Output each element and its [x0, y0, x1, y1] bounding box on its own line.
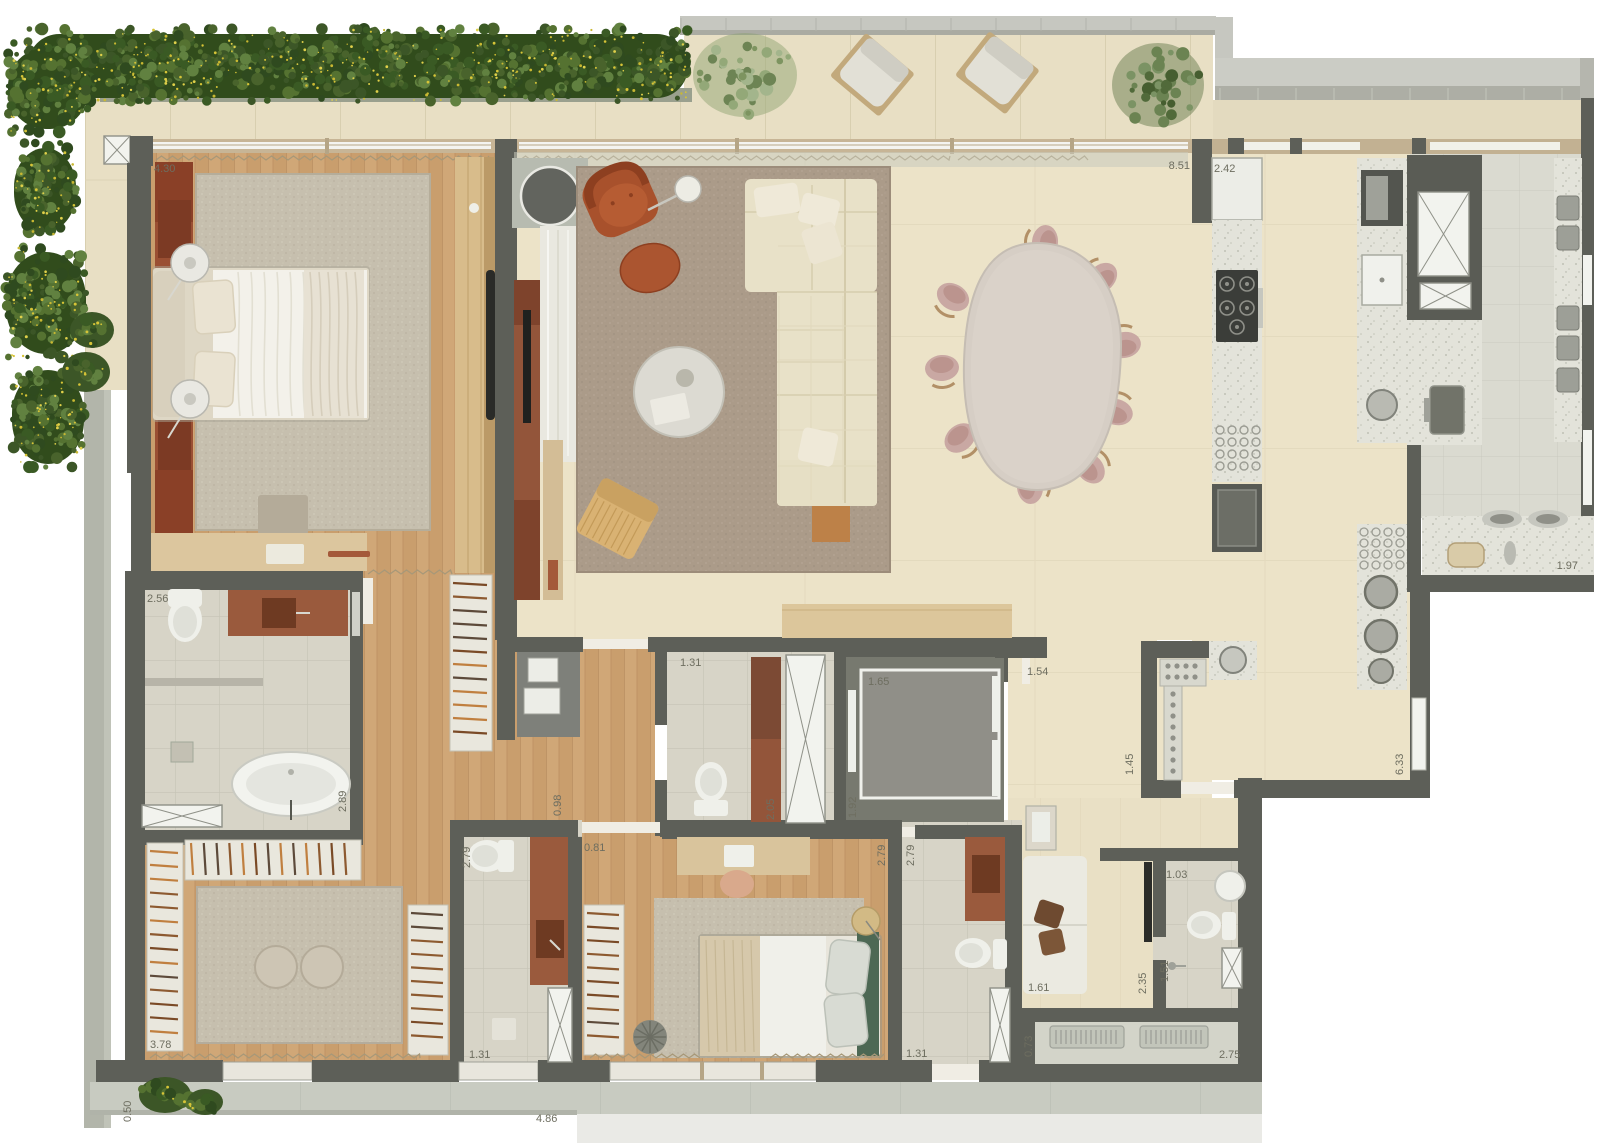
- svg-text:1.65: 1.65: [868, 676, 889, 688]
- svg-text:1.97: 1.97: [1557, 560, 1578, 572]
- svg-text:4.30: 4.30: [154, 163, 175, 175]
- svg-text:1.51: 1.51: [1159, 961, 1171, 982]
- svg-text:2.42: 2.42: [1214, 163, 1235, 175]
- svg-text:3.78: 3.78: [150, 1039, 171, 1051]
- svg-text:2.05: 2.05: [765, 799, 777, 820]
- svg-text:1.31: 1.31: [469, 1049, 490, 1061]
- svg-text:2.35: 2.35: [1137, 973, 1149, 994]
- svg-text:4.86: 4.86: [536, 1113, 557, 1125]
- svg-text:0.98: 0.98: [552, 795, 564, 816]
- svg-text:2.75: 2.75: [1219, 1049, 1240, 1061]
- svg-text:0.50: 0.50: [122, 1101, 134, 1122]
- svg-text:0.81: 0.81: [584, 842, 605, 854]
- svg-text:1.45: 1.45: [1124, 754, 1136, 775]
- svg-text:2.89: 2.89: [337, 791, 349, 812]
- svg-text:1.61: 1.61: [1028, 982, 1049, 994]
- svg-text:6.33: 6.33: [1394, 754, 1406, 775]
- svg-text:8.51: 8.51: [1169, 160, 1190, 172]
- svg-text:1.54: 1.54: [1027, 666, 1048, 678]
- svg-text:1.92: 1.92: [847, 797, 859, 818]
- svg-text:0.73: 0.73: [1023, 1036, 1035, 1057]
- svg-text:2.56: 2.56: [147, 593, 168, 605]
- svg-text:1.31: 1.31: [680, 657, 701, 669]
- svg-text:1.31: 1.31: [906, 1048, 927, 1060]
- svg-text:1.03: 1.03: [1166, 869, 1187, 881]
- svg-text:2.79: 2.79: [461, 847, 473, 868]
- svg-text:2.79: 2.79: [905, 845, 917, 866]
- svg-text:2.79: 2.79: [876, 845, 888, 866]
